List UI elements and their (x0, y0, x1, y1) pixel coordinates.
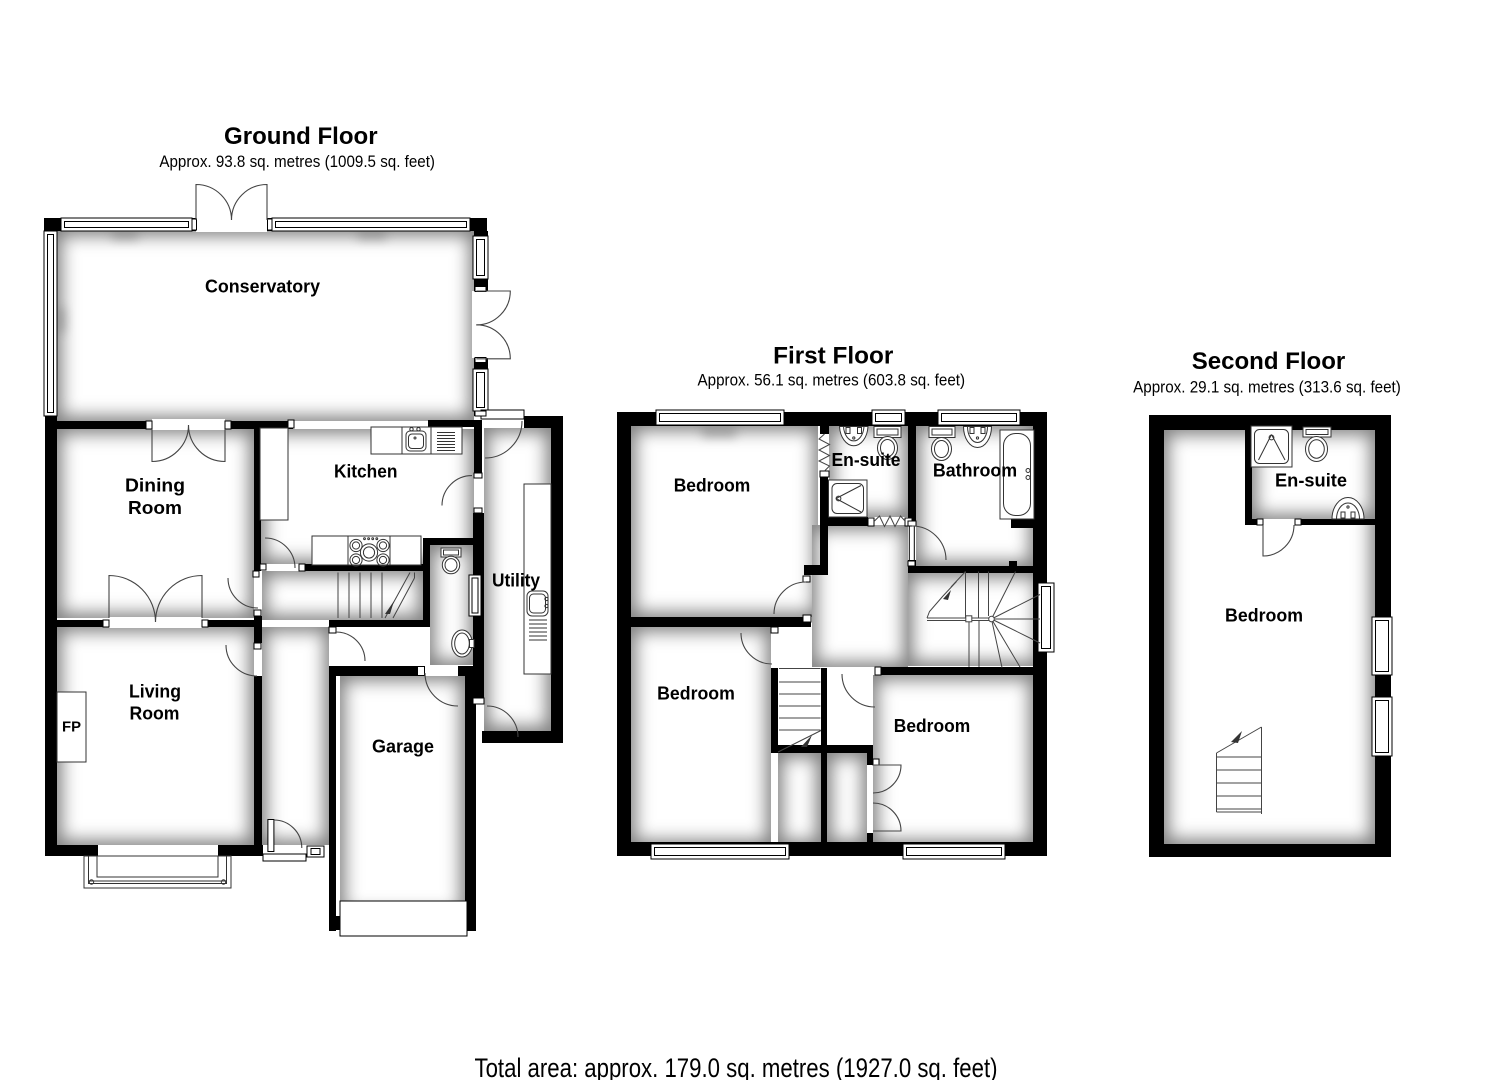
svg-text:Approx. 29.1 sq. metres (313.6: Approx. 29.1 sq. metres (313.6 sq. feet) (1133, 379, 1401, 397)
svg-text:Bedroom: Bedroom (894, 715, 970, 736)
svg-text:Approx. 56.1 sq. metres (603.8: Approx. 56.1 sq. metres (603.8 sq. feet) (698, 372, 966, 390)
svg-text:First Floor: First Floor (773, 342, 894, 369)
svg-text:FP: FP (62, 720, 81, 736)
svg-text:Approx. 93.8 sq. metres (1009.: Approx. 93.8 sq. metres (1009.5 sq. feet… (159, 153, 435, 171)
svg-text:Bedroom: Bedroom (657, 683, 735, 704)
svg-text:Bathroom: Bathroom (933, 460, 1017, 481)
svg-text:Living: Living (129, 681, 181, 702)
svg-text:Kitchen: Kitchen (334, 461, 398, 482)
svg-text:En-suite: En-suite (1275, 470, 1347, 491)
svg-text:Total area: approx. 179.0 sq.: Total area: approx. 179.0 sq. metres (19… (475, 1053, 998, 1080)
svg-text:Bedroom: Bedroom (674, 475, 751, 496)
svg-text:Room: Room (130, 703, 180, 724)
svg-text:Garage: Garage (372, 736, 434, 757)
svg-text:Bedroom: Bedroom (1225, 605, 1303, 626)
svg-text:Dining: Dining (125, 475, 185, 496)
svg-text:En-suite: En-suite (832, 449, 901, 470)
svg-text:Room: Room (128, 497, 182, 518)
svg-text:Conservatory: Conservatory (205, 276, 321, 297)
svg-text:Second Floor: Second Floor (1192, 348, 1346, 375)
svg-text:Ground Floor: Ground Floor (224, 123, 378, 150)
svg-text:Utility: Utility (492, 570, 541, 591)
